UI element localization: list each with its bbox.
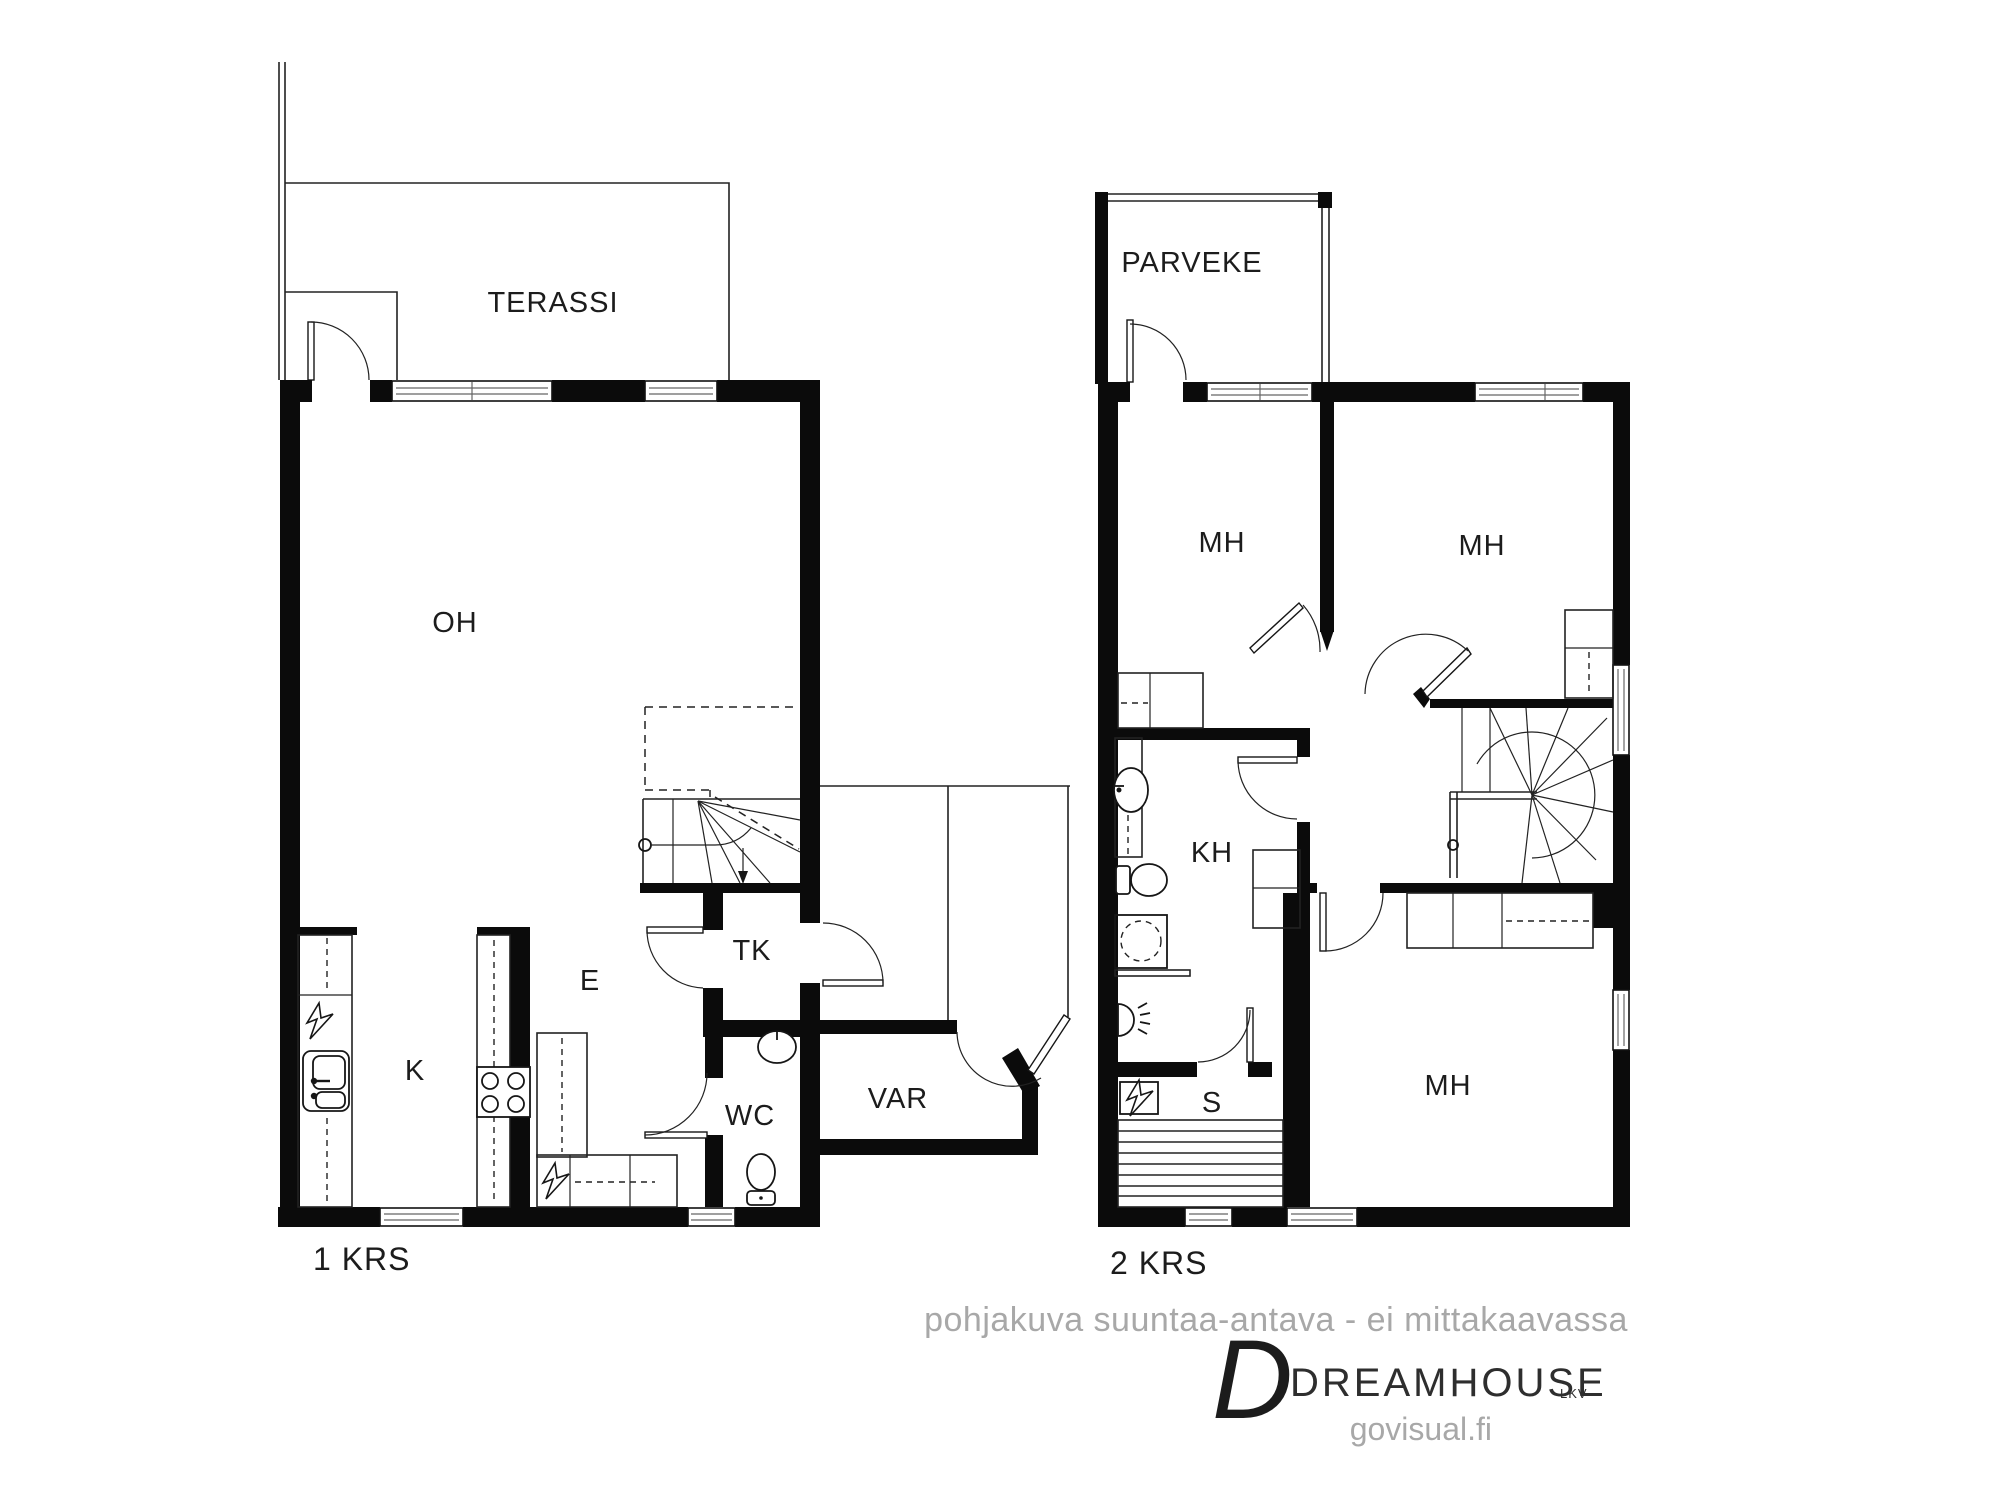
window (380, 1208, 463, 1226)
room-label-mh-top-right: MH (1458, 530, 1505, 562)
terrace-door (308, 322, 369, 380)
kh-toilet-icon (1116, 866, 1130, 894)
stairs-floor-1 (639, 707, 800, 884)
room-label-terassi: TERASSI (487, 287, 618, 319)
kitchen-counter-left (298, 935, 352, 1207)
terrace-outline (279, 62, 729, 380)
floorplan-page: TERASSI OH K E TK WC VAR 1 KRS (0, 0, 2000, 1500)
floorplan-canvas: TERASSI OH K E TK WC VAR 1 KRS (0, 0, 2000, 1500)
floor-2-title: 2 KRS (1110, 1245, 1207, 1281)
floor-2-plan: PARVEKE MH MH KH S MH 2 KRS (1095, 192, 1630, 1281)
room-label-tk: TK (732, 935, 771, 967)
entry-porch (820, 786, 1070, 1086)
website-text: govisual.fi (1350, 1411, 1492, 1447)
window (1185, 1208, 1232, 1226)
window (392, 381, 552, 401)
brand-suffix: LKV (1560, 1386, 1588, 1401)
toilet-icon (747, 1154, 775, 1190)
bedroom-doors (1250, 603, 1471, 697)
floor-1-plan: TERASSI OH K E TK WC VAR 1 KRS (278, 62, 1070, 1277)
room-label-mh-top-left: MH (1198, 527, 1245, 559)
window (1207, 383, 1312, 401)
room-label-s: S (1202, 1087, 1222, 1119)
window (1287, 1208, 1357, 1226)
front-door-leaf (1028, 1015, 1070, 1074)
electrical-lightning-icon (543, 1163, 569, 1199)
floor-1-title: 1 KRS (313, 1241, 410, 1277)
floor-2-windows (1185, 383, 1629, 1226)
stairs-floor-2 (1448, 708, 1613, 883)
sauna (1118, 1008, 1283, 1207)
room-label-parveke: PARVEKE (1121, 247, 1262, 279)
balcony-outline (1095, 192, 1332, 384)
stove-icon (477, 1067, 530, 1117)
sauna-heater-lightning-icon (1127, 1080, 1153, 1116)
room-label-kh: KH (1191, 837, 1233, 869)
kh-door (1238, 757, 1297, 819)
balcony-door-leaf (1127, 320, 1133, 382)
room-label-oh: OH (432, 607, 478, 639)
window (1613, 665, 1629, 755)
floor-2-walls (1098, 382, 1630, 1227)
footer: pohjakuva suuntaa-antava - ei mittakaava… (924, 1301, 1628, 1447)
sauna-benches-icon (1118, 1120, 1283, 1207)
room-label-mh-bottom: MH (1424, 1070, 1471, 1102)
window (1613, 990, 1629, 1050)
bottom-bedroom-door (1320, 893, 1383, 951)
room-label-wc: WC (725, 1100, 775, 1132)
window (688, 1208, 735, 1226)
dishwasher-lightning-icon (307, 1003, 333, 1039)
kh-fixtures (1114, 738, 1190, 1036)
brand-logo-icon: D (1212, 1317, 1293, 1442)
window (645, 381, 717, 401)
room-label-k: K (405, 1055, 425, 1087)
hall-cabinets (537, 1033, 677, 1207)
washing-machine-icon (1115, 915, 1190, 976)
room-label-var: VAR (868, 1083, 928, 1115)
balcony-door-arc (1130, 324, 1186, 380)
room-label-e: E (580, 965, 600, 997)
kitchen-sink-icon (303, 1051, 349, 1111)
window (1475, 383, 1583, 401)
floor-1-windows (380, 381, 735, 1226)
shower-icon (1118, 1003, 1150, 1036)
